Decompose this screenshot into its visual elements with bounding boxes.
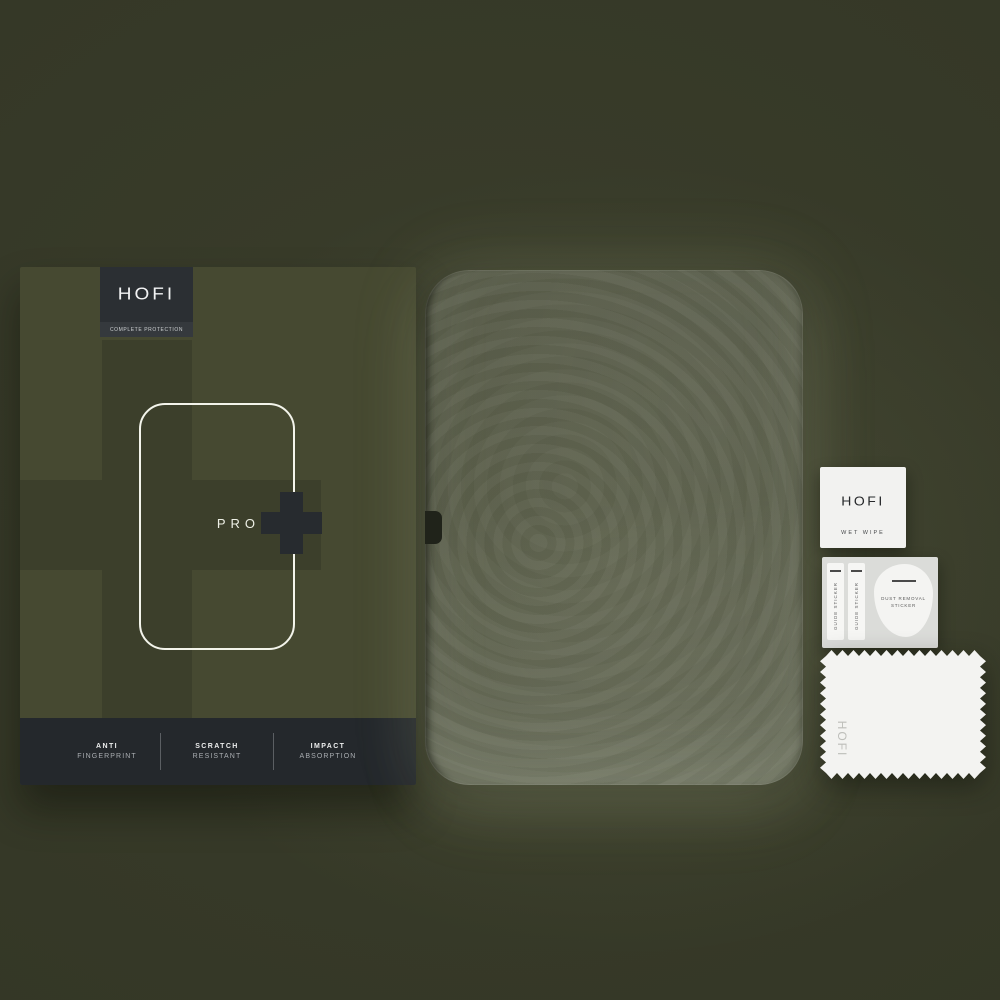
retail-box: HOFI COMPLETE PROTECTION PRO ANTI FINGER… — [20, 267, 416, 785]
brand-tagline: COMPLETE PROTECTION — [100, 322, 193, 337]
guide-sticker: GUIDE STICKER — [848, 563, 865, 640]
features-bar: ANTI FINGERPRINT SCRATCH RESISTANT IMPAC… — [20, 718, 416, 785]
feature-subtitle: ABSORPTION — [300, 753, 357, 760]
product-line-label: PRO — [198, 516, 260, 531]
feature-title: SCRATCH — [195, 743, 239, 750]
feature-scratch-resistant: SCRATCH RESISTANT — [167, 718, 267, 785]
microfiber-cloth: HOFI — [820, 650, 986, 779]
feature-impact-absorption: IMPACT ABSORPTION — [278, 718, 378, 785]
feature-title: IMPACT — [311, 743, 346, 750]
dust-removal-label: DUST REMOVAL STICKER — [881, 595, 926, 609]
dust-removal-label-line1: DUST REMOVAL — [881, 596, 926, 601]
feature-subtitle: RESISTANT — [193, 753, 242, 760]
brand-badge: HOFI COMPLETE PROTECTION — [100, 267, 193, 337]
sticker-notch-line — [892, 580, 916, 582]
plus-icon — [280, 492, 303, 554]
glass-screen-protector — [425, 270, 803, 785]
guide-sticker-label: GUIDE STICKER — [833, 572, 838, 640]
pull-tab — [425, 511, 442, 544]
dust-removal-label-line2: STICKER — [891, 603, 916, 608]
wet-wipe-label: WET WIPE — [820, 530, 906, 536]
dust-removal-sticker: DUST REMOVAL STICKER — [874, 564, 933, 637]
guide-sticker: GUIDE STICKER — [827, 563, 844, 640]
product-photo-background: HOFI COMPLETE PROTECTION PRO ANTI FINGER… — [0, 0, 1000, 1000]
wet-wipe-brand-logo: HOFI — [820, 494, 906, 509]
feature-divider — [273, 733, 274, 770]
sticker-sheet: GUIDE STICKER GUIDE STICKER DUST REMOVAL… — [822, 557, 938, 648]
feature-anti-fingerprint: ANTI FINGERPRINT — [57, 718, 157, 785]
wet-wipe-packet: HOFI WET WIPE — [820, 467, 906, 548]
feature-divider — [160, 733, 161, 770]
brand-logo: HOFI — [100, 269, 193, 320]
guide-sticker-label: GUIDE STICKER — [854, 572, 859, 640]
cloth-brand-logo: HOFI — [835, 715, 849, 763]
feature-subtitle: FINGERPRINT — [77, 753, 137, 760]
feature-title: ANTI — [96, 743, 118, 750]
